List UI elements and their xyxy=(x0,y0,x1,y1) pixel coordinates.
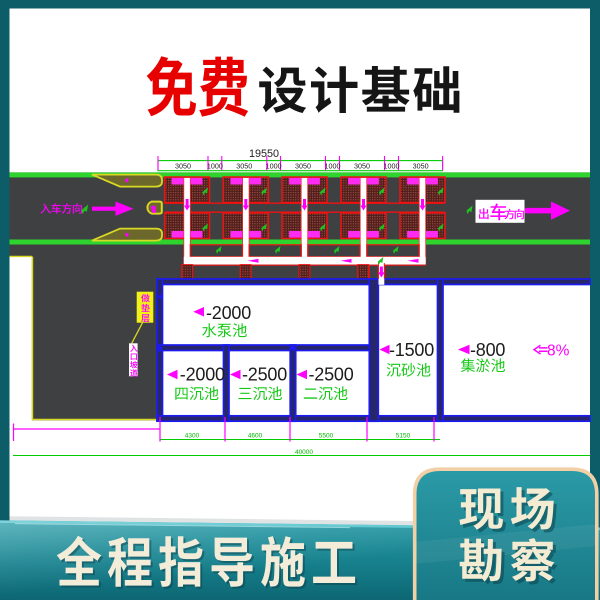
svg-text:5500: 5500 xyxy=(319,433,334,440)
svg-text:1000: 1000 xyxy=(207,162,223,171)
svg-text:3050: 3050 xyxy=(413,162,429,171)
svg-text:4300: 4300 xyxy=(185,433,200,440)
svg-text:1000: 1000 xyxy=(266,162,282,171)
svg-text:1000: 1000 xyxy=(384,162,400,171)
svg-text:-1500: -1500 xyxy=(389,340,434,360)
svg-text:3050: 3050 xyxy=(354,162,370,171)
svg-text:3050: 3050 xyxy=(295,162,311,171)
svg-text:-2500: -2500 xyxy=(242,365,287,385)
svg-text:1000: 1000 xyxy=(325,162,341,171)
svg-text:3050: 3050 xyxy=(236,162,252,171)
svg-text:-800: -800 xyxy=(470,340,505,360)
svg-text:4600: 4600 xyxy=(248,433,263,440)
svg-text:-2000: -2000 xyxy=(180,365,225,385)
svg-text:8%: 8% xyxy=(547,343,570,360)
svg-text:5150: 5150 xyxy=(396,433,411,440)
svg-text:-2000: -2000 xyxy=(206,303,251,323)
svg-text:19550: 19550 xyxy=(249,148,279,160)
svg-text:40000: 40000 xyxy=(295,449,313,456)
svg-text:-2500: -2500 xyxy=(309,365,354,385)
svg-text:3050: 3050 xyxy=(175,162,191,171)
